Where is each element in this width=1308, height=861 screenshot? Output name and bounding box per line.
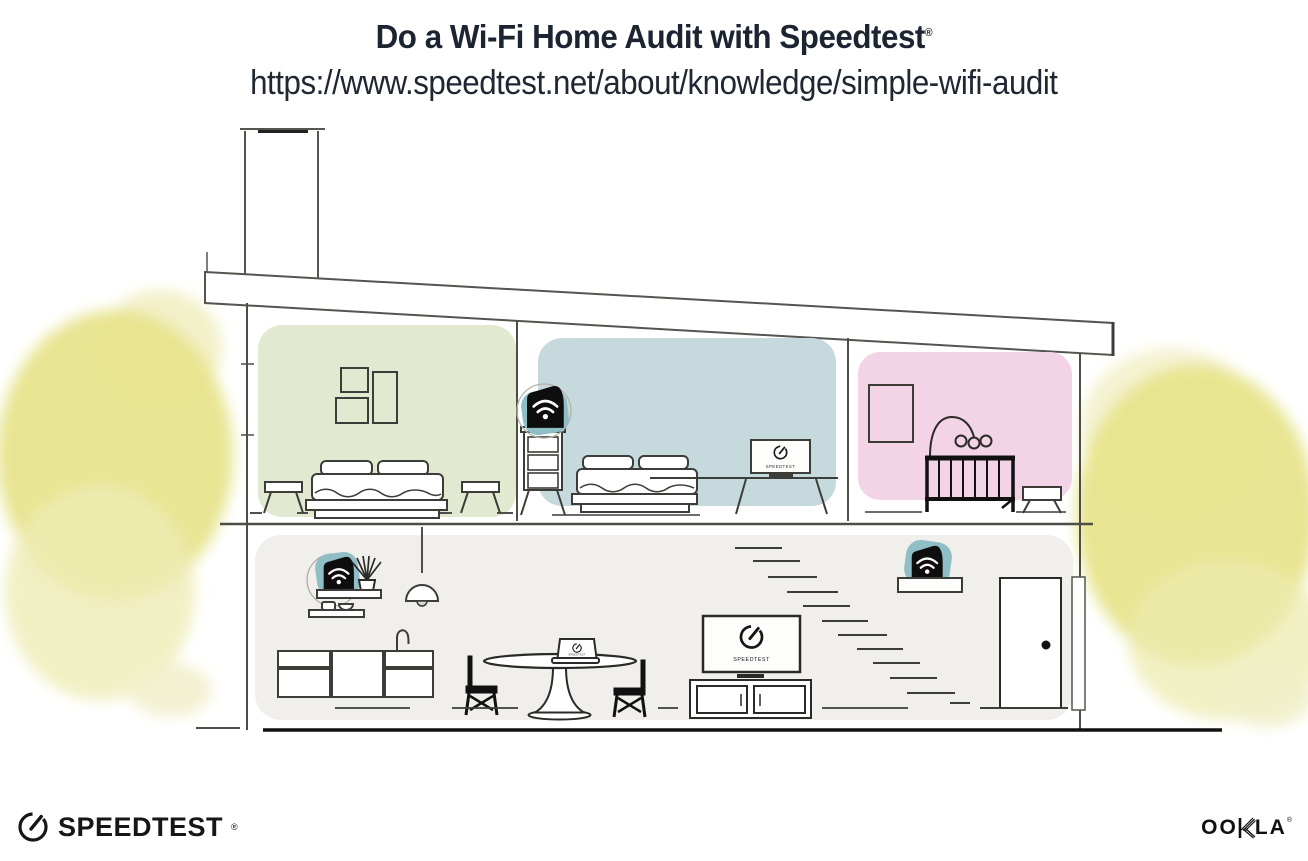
laptop: SPEEDTEST xyxy=(552,639,599,663)
door-knob xyxy=(1042,641,1051,650)
ookla-wordmark: OO xyxy=(1201,816,1238,840)
tv-living-label: SPEEDTEST xyxy=(733,657,770,663)
yellow-tree-left xyxy=(0,290,233,717)
page-url: https://www.speedtest.net/about/knowledg… xyxy=(0,64,1308,103)
wifi-router-kitchen xyxy=(324,557,354,592)
wifi-extender-bedroom xyxy=(527,386,564,428)
registered-mark: ® xyxy=(231,818,238,836)
stool-nursery xyxy=(1023,487,1061,513)
page-title: Do a Wi-Fi Home Audit with Speedtest® xyxy=(0,18,1308,56)
ookla-hatched-k-icon xyxy=(1237,816,1256,840)
nursery-pink-wall xyxy=(858,352,1072,500)
tv-living-room: SPEEDTEST xyxy=(703,616,800,678)
wifi-extender-stairs xyxy=(912,546,943,581)
yellow-tree-right xyxy=(1076,348,1308,727)
registered-mark: ® xyxy=(925,27,932,39)
chimney xyxy=(207,129,325,283)
stair-shelf xyxy=(898,578,962,592)
speedtest-gauge-icon xyxy=(16,810,50,844)
speedtest-logo: SPEEDTEST® xyxy=(16,810,238,844)
speedtest-wordmark: SPEEDTEST xyxy=(58,812,223,843)
ookla-wordmark: LA xyxy=(1255,816,1287,840)
wifi-home-audit-infographic: SPEEDTEST xyxy=(0,0,1308,861)
tv-console xyxy=(690,680,811,718)
registered-mark: ® xyxy=(1287,816,1292,826)
door-trim xyxy=(1072,577,1085,710)
tv-bedroom-label: SPEEDTEST xyxy=(766,464,796,469)
laptop-label: SPEEDTEST xyxy=(568,653,585,657)
house-cross-section-illustration: SPEEDTEST xyxy=(0,0,1308,861)
ookla-logo: OO LA® xyxy=(1201,816,1292,840)
